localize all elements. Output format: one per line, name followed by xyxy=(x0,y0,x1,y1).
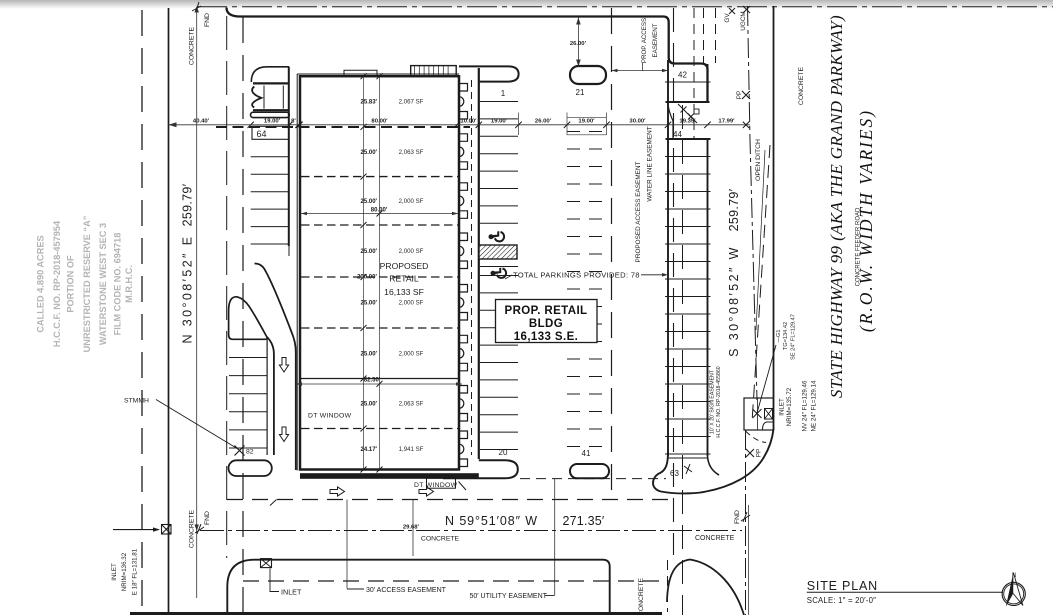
svg-text:CONCRETE: CONCRETE xyxy=(798,66,805,105)
svg-text:SE 24″ FL=129.47: SE 24″ FL=129.47 xyxy=(791,314,797,360)
svg-text:25.00′: 25.00′ xyxy=(361,402,378,408)
svg-text:CONCRETE: CONCRETE xyxy=(189,509,196,548)
svg-text:26.00′: 26.00′ xyxy=(535,119,552,125)
svg-text:2,067 SF: 2,067 SF xyxy=(399,99,424,106)
svg-text:INLET: INLET xyxy=(111,563,118,581)
svg-text:63: 63 xyxy=(670,469,679,478)
svg-text:EASEMENT: EASEMENT xyxy=(652,23,659,57)
svg-text:NE 24″ FL=129.14: NE 24″ FL=129.14 xyxy=(811,380,818,431)
svg-text:—G1: —G1 xyxy=(776,329,782,342)
svg-text:259.79′: 259.79′ xyxy=(727,188,741,231)
svg-text:42: 42 xyxy=(678,71,687,80)
svg-text:UNRESTRICTED RESERVE “A”: UNRESTRICTED RESERVE “A” xyxy=(82,216,92,353)
svg-text:25.00′: 25.00′ xyxy=(361,249,378,255)
svg-text:19.00′: 19.00′ xyxy=(491,119,508,125)
svg-text:2,000 SF: 2,000 SF xyxy=(399,350,424,357)
svg-text:CONCRETE: CONCRETE xyxy=(695,535,735,542)
svg-text:PROP. RETAIL: PROP. RETAIL xyxy=(505,305,588,317)
svg-text:GV: GV xyxy=(724,13,731,23)
svg-text:(R.O.W. WIDTH VARIES): (R.O.W. WIDTH VARIES) xyxy=(856,109,876,332)
svg-text:H.C.C.F. NO. RP-2018-455860: H.C.C.F. NO. RP-2018-455860 xyxy=(716,366,722,437)
svg-text:2,063 SF: 2,063 SF xyxy=(399,401,424,408)
svg-text:STATE HIGHWAY 99 (AKA THE GRAN: STATE HIGHWAY 99 (AKA THE GRAND PARKWAY) xyxy=(827,15,846,398)
svg-text:26.00′: 26.00′ xyxy=(570,41,587,47)
svg-text:PROP. ACCESS: PROP. ACCESS xyxy=(641,18,648,63)
svg-text:82: 82 xyxy=(246,449,254,456)
svg-text:WATERSTONE WEST SEC 3: WATERSTONE WEST SEC 3 xyxy=(98,223,108,345)
svg-text:30′ ACCESS EASEMENT: 30′ ACCESS EASEMENT xyxy=(366,587,447,594)
svg-text:CONCRETE: CONCRETE xyxy=(638,577,645,615)
svg-text:FND: FND xyxy=(204,511,211,525)
svg-text:50′ UTILITY EASEMENT: 50′ UTILITY EASEMENT xyxy=(470,593,548,600)
svg-text:2,000 SF: 2,000 SF xyxy=(399,198,424,205)
svg-text:40.40′: 40.40′ xyxy=(193,119,210,125)
svg-text:PP: PP xyxy=(756,449,763,458)
svg-text:10′ X 20′ SIGN EASEMENT: 10′ X 20′ SIGN EASEMENT xyxy=(710,369,716,434)
svg-text:N 59°51′08″ W: N 59°51′08″ W xyxy=(445,514,538,528)
svg-text:16,133 S.E.: 16,133 S.E. xyxy=(514,331,579,343)
svg-text:SCALE: 1″ = 20′-0″: SCALE: 1″ = 20′-0″ xyxy=(807,596,876,605)
svg-text:8′: 8′ xyxy=(291,119,296,125)
svg-text:N: N xyxy=(1012,573,1016,579)
svg-text:FILM CODE NO. 694718: FILM CODE NO. 694718 xyxy=(113,233,123,336)
svg-text:NRIM=135.72: NRIM=135.72 xyxy=(786,387,793,426)
svg-text:25.00′: 25.00′ xyxy=(361,351,378,357)
svg-text:44: 44 xyxy=(673,130,682,139)
svg-text:19.00′: 19.00′ xyxy=(578,119,595,125)
svg-text:INLET: INLET xyxy=(281,588,302,597)
svg-text:RETAIL: RETAIL xyxy=(389,274,419,284)
svg-text:WATER LINE EASEMENT: WATER LINE EASEMENT xyxy=(647,126,654,201)
svg-text:19.35′: 19.35′ xyxy=(679,119,696,125)
svg-text:25.83′: 25.83′ xyxy=(361,100,378,106)
svg-text:25.00′: 25.00′ xyxy=(361,199,378,205)
svg-text:E 18″ FL=131.81: E 18″ FL=131.81 xyxy=(132,548,139,595)
svg-text:200.00′: 200.00′ xyxy=(357,275,377,281)
svg-text:30.00′: 30.00′ xyxy=(629,119,646,125)
svg-text:CONCRETE: CONCRETE xyxy=(421,536,460,543)
svg-text:NRIM=136.32: NRIM=136.32 xyxy=(121,552,128,591)
svg-text:CALLED 4.890 ACRES: CALLED 4.890 ACRES xyxy=(36,235,46,332)
svg-text:PROPOSED: PROPOSED xyxy=(380,261,429,271)
svg-text:25.00′: 25.00′ xyxy=(361,150,378,156)
svg-text:21: 21 xyxy=(576,88,585,97)
svg-text:25.00′: 25.00′ xyxy=(361,301,378,307)
svg-text:PP: PP xyxy=(736,91,743,100)
svg-text:M.R.H.C.: M.R.H.C. xyxy=(124,265,134,303)
svg-text:271.35′: 271.35′ xyxy=(563,514,605,528)
svg-text:10.00′: 10.00′ xyxy=(460,119,477,125)
svg-text:2,000 SF: 2,000 SF xyxy=(399,248,424,255)
svg-text:CONCRETE: CONCRETE xyxy=(189,26,196,65)
svg-text:19.00′: 19.00′ xyxy=(264,119,281,125)
svg-text:N 30°08′52″ E: N 30°08′52″ E xyxy=(181,235,195,344)
svg-text:BLDG: BLDG xyxy=(529,318,563,330)
svg-text:TOTAL PARKINGS PROVIDED: 78: TOTAL PARKINGS PROVIDED: 78 xyxy=(513,271,640,280)
svg-text:24.17′: 24.17′ xyxy=(361,447,378,453)
svg-text:41: 41 xyxy=(582,449,591,458)
svg-text:2,000 SF: 2,000 SF xyxy=(399,300,424,307)
svg-text:SITE PLAN: SITE PLAN xyxy=(807,579,878,593)
svg-text:INLET: INLET xyxy=(779,398,786,416)
svg-text:29.68′: 29.68′ xyxy=(403,525,420,531)
svg-text:80.00′: 80.00′ xyxy=(371,208,388,214)
svg-text:PORTION OF: PORTION OF xyxy=(66,255,76,313)
svg-text:64: 64 xyxy=(257,129,267,139)
svg-text:1,941 SF: 1,941 SF xyxy=(399,446,424,453)
svg-text:FND: FND xyxy=(734,510,741,524)
svg-text:PROPOSED ACCESS EASEMENT: PROPOSED ACCESS EASEMENT xyxy=(635,161,642,262)
svg-text:80.00′: 80.00′ xyxy=(371,119,388,125)
svg-text:1: 1 xyxy=(501,89,506,98)
svg-text:UGCM: UGCM xyxy=(740,11,747,31)
svg-text:17.99′: 17.99′ xyxy=(718,119,735,125)
svg-text:82.50′: 82.50′ xyxy=(364,378,381,384)
svg-text:2,063 SF: 2,063 SF xyxy=(399,149,424,156)
svg-text:S 30°08′52″ W: S 30°08′52″ W xyxy=(727,245,741,357)
svg-text:DT WINDOW: DT WINDOW xyxy=(308,413,352,420)
svg-text:259.79′: 259.79′ xyxy=(181,183,195,226)
svg-text:16,133 SF: 16,133 SF xyxy=(384,287,424,297)
svg-text:OPEN DITCH: OPEN DITCH xyxy=(755,139,762,181)
svg-text:H.C.C.F. NO. RP-2018-457954: H.C.C.F. NO. RP-2018-457954 xyxy=(52,220,62,347)
svg-text:20: 20 xyxy=(499,448,508,457)
svg-text:TG=134.42: TG=134.42 xyxy=(783,322,789,350)
svg-text:STMMH: STMMH xyxy=(124,398,149,405)
svg-text:FND: FND xyxy=(204,13,211,27)
svg-text:NV 24″ FL=129.46: NV 24″ FL=129.46 xyxy=(802,380,809,431)
